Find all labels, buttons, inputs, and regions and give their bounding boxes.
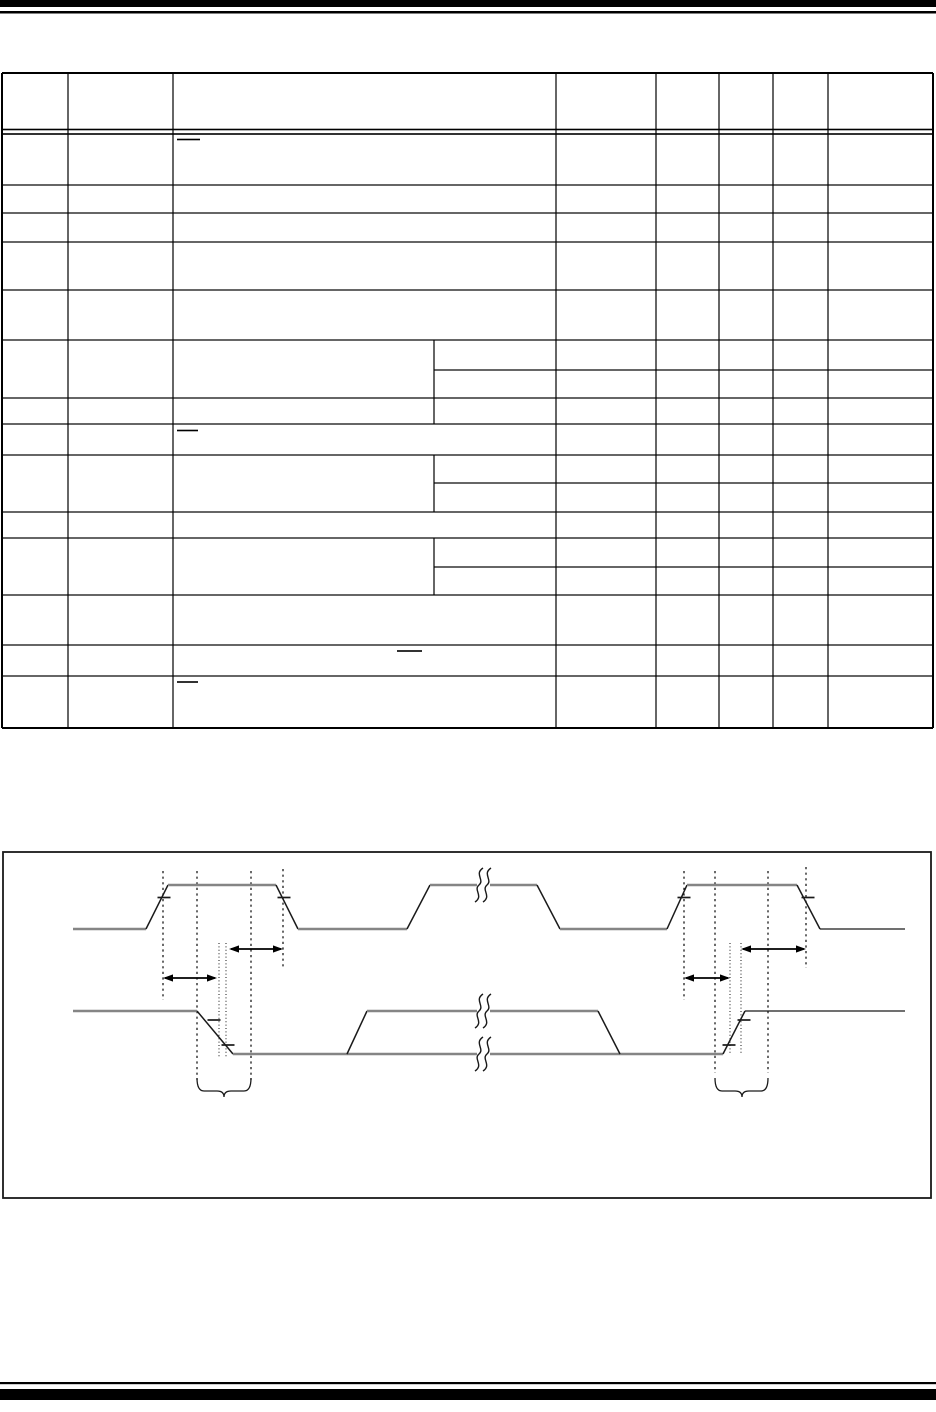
table-grid-hline <box>2 454 933 455</box>
page-canvas <box>0 0 936 1412</box>
table-grid-hline <box>434 482 933 483</box>
table-grid-vline <box>932 73 934 728</box>
table-grid-hline <box>434 369 933 370</box>
table-grid-hline <box>2 289 933 290</box>
timing-diagram-frame <box>3 852 931 1198</box>
timing-arrowhead-right <box>796 945 806 952</box>
table-grid-hline <box>2 727 933 729</box>
clock-waveform-segment <box>407 885 430 929</box>
table-grid-vline <box>772 73 773 728</box>
timing-arrowhead-left <box>229 945 239 952</box>
table-grid-vline <box>433 455 434 512</box>
timing-arrowhead-right <box>207 974 217 981</box>
signal-overline-mark <box>177 430 198 432</box>
waveform-break-icon <box>483 868 491 902</box>
bottom-thin-rule <box>0 1382 936 1384</box>
table-grid-hline <box>2 212 933 213</box>
table-grid-hline <box>434 566 933 567</box>
timing-arrowhead-left <box>684 974 694 981</box>
waveform-break-icon <box>483 994 491 1028</box>
data-waveform-segment <box>347 1011 367 1054</box>
table-grid-hline <box>2 511 933 512</box>
table-grid-vline <box>555 73 556 728</box>
timing-arrowhead-left <box>163 974 173 981</box>
table-grid-hline <box>2 339 933 340</box>
table-grid-hline <box>2 644 933 645</box>
table-grid-vline <box>433 538 434 595</box>
table-grid-hline <box>2 423 933 424</box>
clock-waveform-segment <box>797 885 820 929</box>
data-waveform-segment <box>197 1011 233 1054</box>
table-grid-hline <box>2 594 933 595</box>
data-waveform-segment <box>723 1011 745 1054</box>
table-grid-vline <box>67 73 68 728</box>
waveform-break-icon <box>483 1037 491 1071</box>
table-grid-vline <box>718 73 719 728</box>
table-grid-hline <box>2 184 933 185</box>
signal-overline-mark <box>177 681 198 683</box>
table-grid-hline <box>2 129 933 131</box>
clock-waveform-segment <box>537 885 560 929</box>
table-grid-vline <box>172 73 173 728</box>
table-grid-vline <box>433 340 434 424</box>
table-grid-vline <box>827 73 828 728</box>
table-grid-vline <box>1 73 3 728</box>
clock-waveform-segment <box>146 885 168 929</box>
table-grid-hline <box>2 537 933 538</box>
table-grid-hline <box>2 133 933 135</box>
underbrace <box>715 1078 768 1097</box>
table-grid-hline <box>2 241 933 242</box>
table-grid-hline <box>2 72 933 74</box>
timing-arrowhead-right <box>273 945 283 952</box>
timing-arrowhead-left <box>741 945 751 952</box>
table-grid-hline <box>2 397 933 398</box>
data-waveform-segment <box>598 1011 620 1054</box>
signal-overline-mark <box>177 139 200 141</box>
top-thick-rule <box>0 0 936 7</box>
signal-overline-mark <box>397 650 422 652</box>
underbrace <box>197 1078 251 1097</box>
bottom-thick-rule <box>0 1389 936 1400</box>
clock-waveform-segment <box>276 885 298 929</box>
table-grid-hline <box>2 675 933 676</box>
top-thin-rule <box>0 11 936 14</box>
table-grid-vline <box>655 73 656 728</box>
datasheet-page <box>0 0 936 1412</box>
timing-arrowhead-right <box>720 974 730 981</box>
